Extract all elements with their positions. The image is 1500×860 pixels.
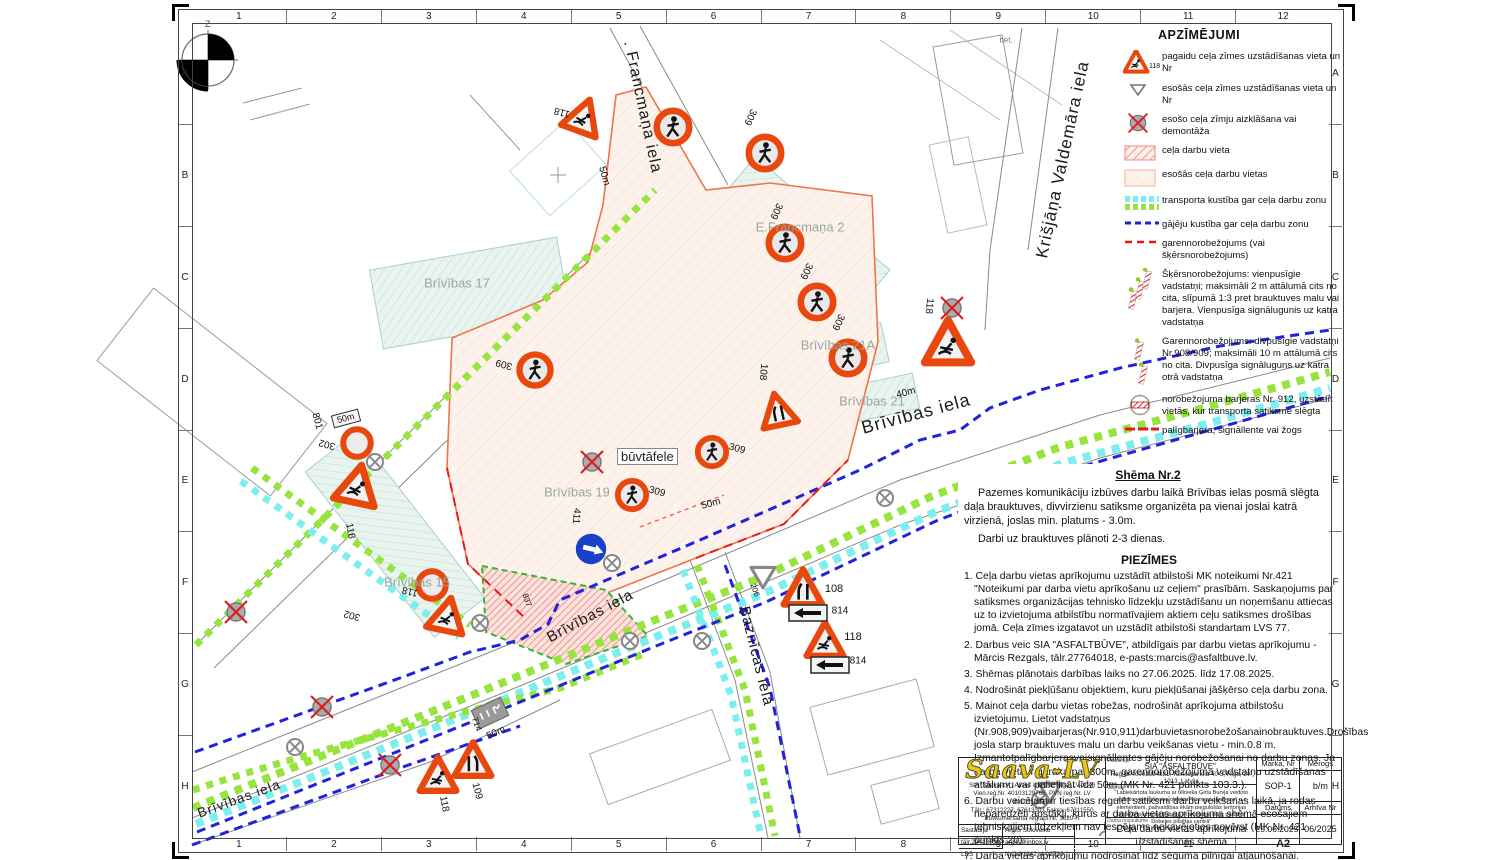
covered-sign-icon [311,696,333,718]
existing-sign-icon [1122,82,1162,98]
sign-tag: 814 [832,606,849,617]
map-note: bet. [999,36,1012,45]
legend-item: esošās ceļa zīmes uzstādīšanas vieta un … [1122,82,1342,107]
grid-label: C [1329,227,1342,329]
note-item: 4. Nodrošināt piekļūšanu objektiem, kuru… [962,684,1338,697]
title-block-company: Saava-LV SIA "Saava-LV", Alises iela 2 a… [959,758,1106,844]
grid-label: F [1329,532,1342,634]
scheme-paragraph: Darbi uz brauktuves plānoti 2-3 dienas. [964,532,1332,546]
grid-label: 11 [1141,9,1236,23]
grid-label: E [1329,431,1342,533]
roadworks-sign-118-icon [420,757,457,790]
corner-mark [172,4,189,21]
grid-label: 8 [856,837,951,851]
roadworks-sign-118-icon [925,320,971,362]
building-label: Brīvības 21A [801,338,875,353]
grid-label: 1 [192,837,287,851]
grid-label: B [1329,125,1342,227]
legend-panel: APZĪMĒJUMI 118 pagaidu ceļa zīmes uzstād… [1100,24,1342,324]
grid-label: 3 [382,9,477,23]
barrier-line-swatch [1122,237,1162,247]
covered-sign-icon [1122,113,1162,133]
building-label: Brīvības 21 [839,394,905,409]
legend-item: Šķērsnorobežojums: vienpusīgie vadstatņi… [1122,268,1342,329]
title-block-center: Pasūtītājs SIA "ASFALTBŪVE", Reģ.Nr.4000… [1106,758,1257,844]
pedestrian-route-swatch [1122,218,1162,228]
grid-label: 5 [572,9,667,23]
client-address: Reģ.Nr.40003994881, Tomsona iela 40-3, R… [1106,771,1256,785]
no-pedestrians-sign-309-icon [519,354,550,385]
covered-sign-icon [581,451,603,473]
grid-label: G [178,634,192,736]
aux-barrier-swatch [1122,424,1162,434]
legend-item: garennorobežojums (vai šķērsnorobežojums… [1122,237,1342,262]
legend-item: Garennorobežojums: divpusīgie vadstatņi … [1122,335,1342,387]
sign-tag: 411 [570,508,582,525]
client-cell: Pasūtītājs SIA "ASFALTBŪVE", Reģ.Nr.4000… [1106,758,1256,785]
grid-label: 3 [382,837,477,851]
no-vehicles-sign-302-icon [343,429,371,457]
grid-label: 7 [762,9,857,23]
grid-label: 6 [667,9,762,23]
traffic-scheme-drawing: Z Brīvības iela Brīvības iela Brīvības i… [0,0,1500,860]
covered-sign-icon [379,754,401,776]
grid-label: H [178,736,192,837]
transport-route-swatch [1122,194,1162,212]
no-pedestrians-sign-309-icon [801,286,833,318]
scheme-paragraph: Pazemes komunikāciju izbūves darbu laikā… [964,486,1332,528]
workzone-swatch [1122,144,1162,162]
sign-tag: 814 [850,656,867,667]
no-pedestrians-sign-309-icon [618,481,646,509]
notes-title: PIEZĪMES [960,553,1338,567]
grid-label: 2 [287,837,382,851]
grid-label: D [1329,329,1342,431]
signature [1075,827,1105,836]
grid-label: 4 [477,837,572,851]
grid-label: 5 [572,837,667,851]
existing-workzone-swatch [1122,168,1162,188]
covered-sign-icon [225,601,247,623]
company-logo: Saava-LV [959,758,1105,782]
grid-label: 2 [287,9,382,23]
grid-label: A [1329,23,1342,125]
grid-label: 4 [477,9,572,23]
marka-value: SOP-1 [1257,771,1299,801]
grid-label: 11 [1141,837,1236,851]
no-pedestrians-sign-309-icon [698,438,726,466]
scheme-note-panel: Shēma Nr.2 Pazemes komunikāciju izbūves … [958,464,1338,550]
legend-item: palīgbarjera, signāllente vai žogs [1122,424,1342,437]
sign-tag: 118 [844,631,862,643]
grid-label: 6 [667,837,762,851]
signature-cell [1075,825,1105,836]
grid-label: 10 [1046,837,1141,851]
grid-label: G [1329,634,1342,736]
cross-barrier-posts-icon [1122,268,1162,314]
grid-label: A [178,23,192,125]
road-narrows-sign-108-icon [784,570,822,605]
grid-label: F [178,532,192,634]
building-label: Brīvības 19 [544,485,610,500]
grid-label: 10 [1046,9,1141,23]
covered-sign-icon [941,297,963,319]
grid-label: 8 [856,9,951,23]
corner-mark [1338,842,1355,859]
note-item: 3. Shēmas plānotais darbības laiks no 27… [962,668,1338,681]
no-pedestrians-sign-309-icon [749,137,781,169]
notes-panel: PIEZĪMES 1. Ceļa darbu vietas aprīkojumu… [956,551,1342,755]
temporary-sign-icon: 118 [1122,50,1162,76]
no-pedestrians-sign-309-icon [657,111,689,143]
object-cell: Objekts "Labiekārtota laukuma ar tēlniek… [1106,785,1256,818]
grid-columns-bottom: 1234567891011A2 [192,837,1330,851]
sign-tag: 118 [923,298,935,315]
scheme-title: Shēma Nr.2 [964,468,1332,482]
grid-label: 1 [192,9,287,23]
grid-rows-right: ABCDEFGH [1329,23,1342,837]
grid-label: 9 [951,9,1046,23]
grid-label: 9 [951,837,1046,851]
sign-tag: 108 [825,583,843,595]
note-item: 2. Darbus veic SIA "ASFALTBŪVE", atbildī… [962,639,1338,665]
title-block: Saava-LV SIA "Saava-LV", Alises iela 2 a… [958,757,1342,845]
direction-plate-814-icon [789,605,827,621]
grid-columns-top: 123456789101112 [192,9,1330,23]
roadworks-sign-118-icon [807,622,844,655]
builder-board-label: būvtāfele [617,448,678,465]
corner-mark [172,842,189,859]
grid-label: H [1329,736,1342,837]
direction-plate-814-icon [811,657,849,673]
grid-label: 7 [762,837,857,851]
grid-rows-left: ABCDEFGH [178,23,192,837]
legend-item: norobežojuma barjeras Nr. 912, uzstādīt … [1122,393,1342,418]
legend-item: ceļa darbu vieta [1122,144,1342,162]
legend-item: 118 pagaidu ceļa zīmes uzstādīšanas viet… [1122,50,1342,76]
long-barrier-post-icon [1122,335,1162,387]
corner-mark [1338,4,1355,21]
grid-label: C [178,227,192,329]
grid-label: B [178,125,192,227]
legend-item: esošās ceļa darbu vietas [1122,168,1342,188]
grid-label: E [178,431,192,533]
legend-item: esošo ceļa zīmju aizklāšana vai demontāž… [1122,113,1342,138]
barrier-912-icon [1122,393,1162,417]
building-label: E.Francmaņa 2 [756,220,845,235]
legend-title: APZĪMĒJUMI [1158,28,1342,42]
grid-label: A2 [1236,837,1330,851]
grid-label: D [178,329,192,431]
building-label: Brīvības 17 [424,276,490,291]
legend-item: gājēju kustība gar ceļa darbu zonu [1122,218,1342,231]
svg-text:118: 118 [1149,63,1160,70]
grid-label: 12 [1236,9,1330,23]
sign-tag: 108 [757,363,769,381]
legend-item: transporta kustība gar ceļa darbu zonu [1122,194,1342,212]
note-item: 1. Ceļa darbu vietas aprīkojumu uzstādīt… [962,570,1338,636]
